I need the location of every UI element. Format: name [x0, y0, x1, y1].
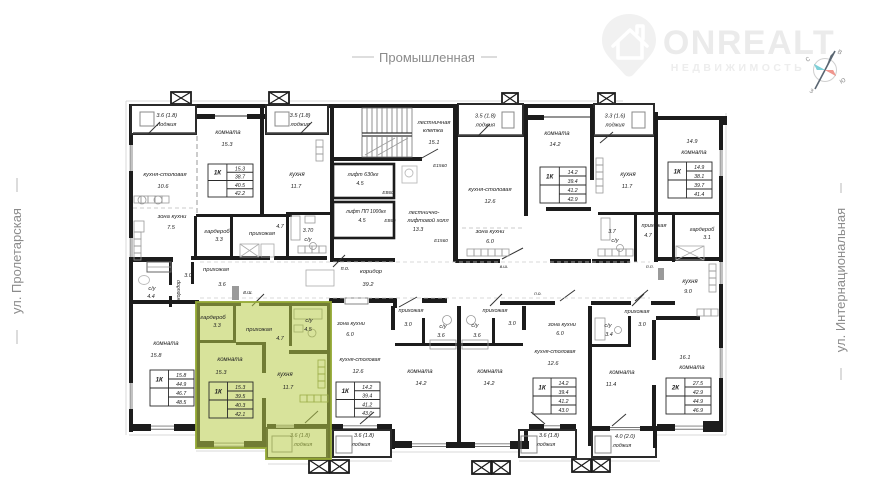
- svg-text:лоджия: лоджия: [536, 442, 556, 448]
- svg-text:14.2: 14.2: [558, 381, 568, 387]
- svg-text:с/у: с/у: [604, 323, 612, 329]
- svg-text:НЕДВИЖИМОСТЬ: НЕДВИЖИМОСТЬ: [671, 62, 805, 74]
- svg-text:1К: 1К: [538, 385, 546, 392]
- svg-text:комната: комната: [477, 369, 503, 375]
- svg-text:с/у: с/у: [305, 318, 313, 324]
- svg-text:зона кухни: зона кухни: [157, 214, 188, 220]
- svg-text:с/у: с/у: [148, 286, 156, 292]
- svg-text:прихожая: прихожая: [483, 308, 508, 314]
- svg-text:12.6: 12.6: [548, 361, 560, 367]
- svg-text:11.7: 11.7: [283, 385, 294, 391]
- svg-text:коридор: коридор: [360, 269, 383, 275]
- svg-text:39.2: 39.2: [363, 282, 375, 288]
- svg-text:14.2: 14.2: [550, 142, 562, 148]
- svg-text:кухня: кухня: [277, 372, 293, 378]
- svg-text:3.0: 3.0: [404, 322, 412, 328]
- svg-text:лестничная: лестничная: [416, 120, 450, 126]
- svg-text:15.3: 15.3: [216, 370, 228, 376]
- svg-text:39.7: 39.7: [694, 183, 705, 189]
- svg-text:с/у: с/у: [611, 238, 619, 244]
- svg-text:4.7: 4.7: [644, 233, 652, 239]
- svg-text:лоджия: лоджия: [475, 122, 495, 128]
- svg-text:прихожая: прихожая: [246, 327, 272, 333]
- svg-text:42.9: 42.9: [693, 390, 703, 396]
- svg-text:12.6: 12.6: [353, 369, 365, 375]
- svg-text:4.0 (2.0): 4.0 (2.0): [615, 434, 635, 440]
- svg-text:7.5: 7.5: [167, 225, 176, 231]
- svg-text:прихожая: прихожая: [399, 308, 424, 314]
- svg-text:41.2: 41.2: [568, 188, 578, 194]
- svg-text:3.5 (1.8): 3.5 (1.8): [290, 113, 311, 119]
- svg-text:3.3: 3.3: [213, 323, 221, 329]
- svg-text:3.1: 3.1: [703, 235, 711, 241]
- svg-text:комната: комната: [407, 369, 433, 375]
- svg-text:14.9: 14.9: [687, 139, 698, 145]
- svg-text:2К: 2К: [671, 385, 680, 392]
- svg-text:14.2: 14.2: [416, 381, 428, 387]
- svg-text:42.9: 42.9: [568, 197, 578, 203]
- svg-text:кухня: кухня: [289, 172, 305, 178]
- svg-text:4.4: 4.4: [147, 294, 155, 300]
- svg-text:лифт 630кг: лифт 630кг: [347, 172, 379, 178]
- svg-text:16.1: 16.1: [680, 355, 691, 361]
- svg-text:кухня-столовая: кухня-столовая: [468, 187, 511, 193]
- svg-text:Е1560: Е1560: [433, 163, 447, 169]
- svg-text:4.7: 4.7: [276, 336, 284, 342]
- svg-text:3.0: 3.0: [184, 273, 192, 279]
- svg-text:3.6 (1.8): 3.6 (1.8): [156, 113, 177, 119]
- svg-text:зона кухни: зона кухни: [475, 229, 506, 235]
- svg-text:Е1560: Е1560: [434, 238, 448, 244]
- svg-text:39.4: 39.4: [362, 394, 372, 400]
- svg-text:ЕВ60: ЕВ60: [384, 218, 396, 223]
- svg-text:клетка: клетка: [423, 128, 444, 134]
- svg-text:3.6: 3.6: [437, 333, 445, 339]
- svg-text:ONREALT: ONREALT: [663, 24, 835, 62]
- svg-text:15.8: 15.8: [176, 373, 186, 379]
- svg-text:11.7: 11.7: [291, 184, 302, 190]
- svg-text:41.2: 41.2: [362, 402, 372, 408]
- svg-text:10.6: 10.6: [158, 184, 170, 190]
- svg-text:ул. Пролетарская: ул. Пролетарская: [9, 208, 24, 314]
- svg-text:комната: комната: [215, 130, 241, 136]
- svg-text:лифт ПП 1000кг: лифт ПП 1000кг: [345, 209, 386, 215]
- svg-text:41.4: 41.4: [694, 192, 704, 198]
- svg-text:14.9: 14.9: [694, 165, 704, 171]
- svg-text:44.9: 44.9: [176, 382, 186, 388]
- svg-text:38.7: 38.7: [235, 175, 246, 181]
- svg-text:4.5: 4.5: [358, 218, 365, 224]
- svg-text:39.5: 39.5: [235, 394, 245, 400]
- svg-text:46.9: 46.9: [693, 408, 703, 414]
- svg-text:п.о.: п.о.: [341, 266, 350, 272]
- svg-text:15.3: 15.3: [222, 142, 234, 148]
- svg-text:40.5: 40.5: [235, 183, 245, 189]
- svg-text:3.7: 3.7: [608, 229, 616, 235]
- svg-text:42.2: 42.2: [235, 191, 245, 197]
- svg-text:42.1: 42.1: [235, 412, 245, 418]
- svg-text:43.0: 43.0: [362, 411, 372, 417]
- svg-text:ул. Интернациональная: ул. Интернациональная: [833, 208, 848, 352]
- svg-text:лоджия: лоджия: [612, 443, 632, 449]
- svg-text:лоджия: лоджия: [351, 442, 371, 448]
- svg-text:зона кухни: зона кухни: [547, 322, 576, 328]
- svg-text:в.ш.: в.ш.: [243, 290, 253, 296]
- svg-text:3.6: 3.6: [218, 282, 226, 288]
- svg-text:кухня: кухня: [682, 279, 698, 285]
- svg-text:лестнично-: лестнично-: [408, 210, 440, 216]
- svg-text:39.4: 39.4: [568, 179, 578, 185]
- svg-text:44.9: 44.9: [693, 399, 703, 405]
- svg-text:комната: комната: [681, 150, 707, 156]
- svg-text:3.70: 3.70: [303, 228, 314, 234]
- svg-text:1К: 1К: [214, 170, 222, 177]
- svg-text:3.4: 3.4: [605, 332, 613, 338]
- svg-text:3.0: 3.0: [508, 321, 516, 327]
- svg-text:комната: комната: [544, 131, 570, 137]
- svg-text:39.4: 39.4: [558, 390, 568, 396]
- svg-text:48.5: 48.5: [176, 400, 186, 406]
- svg-text:6.0: 6.0: [556, 331, 564, 337]
- svg-text:лифтовой холл: лифтовой холл: [406, 217, 449, 224]
- svg-text:15.1: 15.1: [429, 140, 440, 146]
- svg-text:гардероб: гардероб: [690, 227, 715, 233]
- svg-text:3.6 (1.8): 3.6 (1.8): [354, 433, 374, 439]
- svg-text:Промышленная: Промышленная: [379, 50, 475, 65]
- svg-text:1К: 1К: [674, 169, 682, 176]
- svg-text:лоджия: лоджия: [604, 122, 624, 128]
- svg-text:6.0: 6.0: [346, 332, 354, 338]
- svg-text:с/у: с/у: [439, 324, 447, 330]
- svg-text:3.3: 3.3: [215, 237, 223, 243]
- svg-text:кухня-столовая: кухня-столовая: [534, 349, 575, 355]
- svg-text:13.3: 13.3: [413, 227, 424, 233]
- svg-text:п.о.: п.о.: [534, 291, 541, 296]
- svg-text:14.2: 14.2: [362, 385, 372, 391]
- svg-text:38.1: 38.1: [694, 174, 704, 180]
- svg-text:в.ш.: в.ш.: [500, 264, 509, 269]
- svg-text:кухня: кухня: [620, 172, 636, 178]
- svg-text:комната: комната: [679, 365, 705, 371]
- svg-text:комната: комната: [609, 370, 635, 376]
- svg-text:1К: 1К: [156, 377, 164, 384]
- svg-text:43.0: 43.0: [558, 408, 568, 414]
- svg-text:комната: комната: [217, 357, 243, 363]
- svg-text:прихожая: прихожая: [203, 267, 229, 273]
- svg-text:4.5: 4.5: [304, 327, 312, 333]
- svg-text:3.0: 3.0: [638, 322, 646, 328]
- svg-text:п.п.: п.п.: [646, 265, 654, 270]
- svg-text:3.6: 3.6: [473, 333, 481, 339]
- svg-text:11.7: 11.7: [622, 184, 633, 190]
- svg-text:6.0: 6.0: [486, 239, 495, 245]
- svg-text:14.2: 14.2: [484, 381, 496, 387]
- svg-text:15.3: 15.3: [235, 385, 245, 391]
- svg-text:прихожая: прихожая: [249, 231, 275, 237]
- svg-text:46.7: 46.7: [176, 391, 187, 397]
- svg-text:4.5: 4.5: [356, 181, 363, 187]
- svg-text:гардероб: гардероб: [204, 229, 230, 235]
- svg-text:14.2: 14.2: [568, 170, 578, 176]
- svg-text:коридор: коридор: [176, 280, 182, 300]
- svg-text:1К: 1К: [342, 388, 350, 395]
- svg-text:1К: 1К: [215, 389, 223, 396]
- svg-text:1К: 1К: [546, 174, 554, 181]
- svg-text:15.3: 15.3: [235, 166, 245, 172]
- svg-text:4.7: 4.7: [276, 224, 284, 230]
- svg-text:3.6 (1.8): 3.6 (1.8): [539, 433, 559, 439]
- svg-text:зона кухни: зона кухни: [336, 321, 365, 327]
- svg-text:40.3: 40.3: [235, 403, 245, 409]
- svg-text:3.5 (1.8): 3.5 (1.8): [475, 113, 496, 119]
- svg-text:кухня-столовая: кухня-столовая: [143, 172, 186, 178]
- svg-text:с/у: с/у: [471, 323, 479, 329]
- svg-text:12.6: 12.6: [485, 199, 497, 205]
- svg-text:41.2: 41.2: [558, 399, 568, 405]
- svg-text:с/у: с/у: [304, 237, 312, 243]
- svg-text:прихожая: прихожая: [625, 309, 650, 315]
- svg-text:11.4: 11.4: [606, 382, 616, 388]
- svg-text:27.5: 27.5: [692, 381, 703, 387]
- svg-text:ЕВ60: ЕВ60: [382, 190, 394, 195]
- svg-text:прихожая: прихожая: [642, 223, 667, 229]
- svg-text:15.8: 15.8: [151, 353, 163, 359]
- svg-text:гардероб: гардероб: [200, 315, 226, 321]
- svg-text:кухня-столовая: кухня-столовая: [339, 357, 380, 363]
- svg-text:3.3 (1.6): 3.3 (1.6): [605, 113, 626, 119]
- svg-text:комната: комната: [153, 341, 179, 347]
- svg-text:9.0: 9.0: [684, 289, 693, 295]
